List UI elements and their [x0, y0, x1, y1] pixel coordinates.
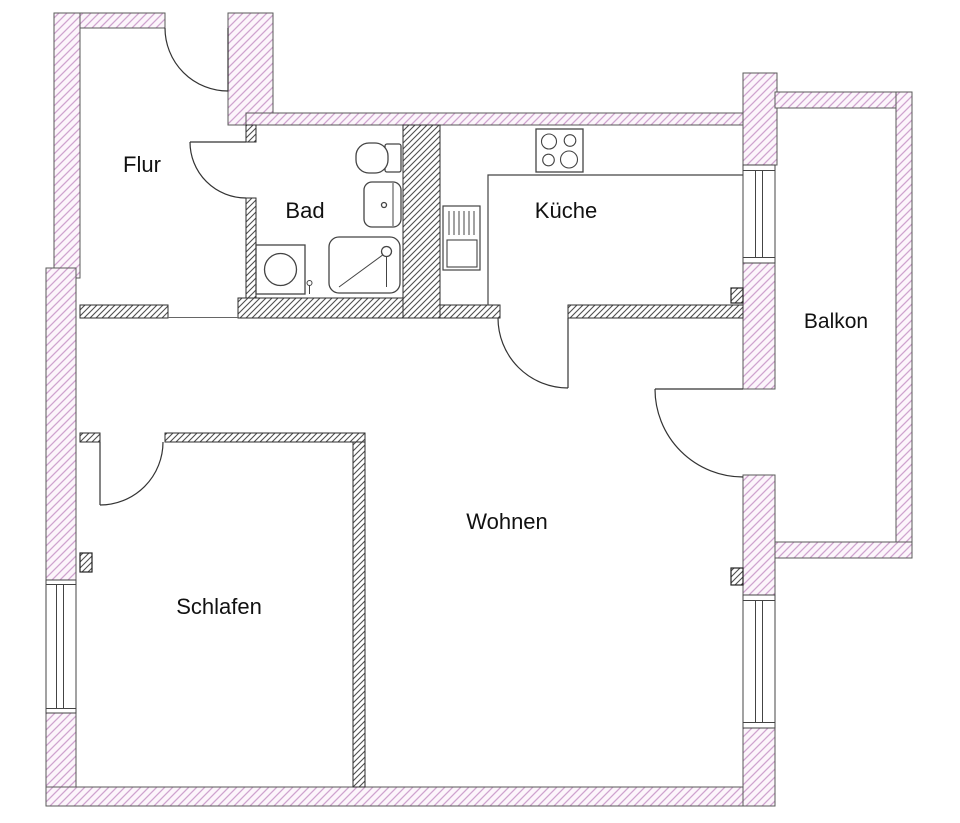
wall-shaft-bad-kueche: [403, 125, 440, 318]
door-entrance-arc: [165, 28, 228, 91]
riser-block-left: [80, 553, 92, 572]
window-schlafen: [46, 580, 76, 713]
interior-walls: [80, 125, 743, 787]
door-bad: [190, 142, 246, 198]
toilet-bowl: [356, 143, 388, 173]
kitchen-counter-edge: [488, 175, 743, 305]
door-bad-arc: [190, 142, 246, 198]
door-balkon: [655, 389, 743, 477]
wall-bottom: [46, 787, 775, 806]
riser-block-kitchen: [731, 288, 743, 303]
stove-burner-3: [543, 154, 555, 166]
wall-right-lower: [743, 728, 775, 806]
stove: [536, 129, 583, 172]
sink-faucet: [382, 203, 387, 208]
door-entrance: [165, 28, 228, 91]
riser-block-wohnen: [731, 568, 743, 585]
shower-tray: [329, 237, 400, 293]
door-schlafen-arc: [100, 442, 163, 505]
kitchen-sink: [443, 206, 480, 270]
wall-schlafen-wohnen: [353, 442, 365, 787]
exterior-walls: [46, 13, 912, 806]
balcony-wall-top: [775, 92, 912, 108]
washing-machine: [256, 245, 312, 294]
wall-left-upper: [54, 13, 80, 278]
shower: [329, 237, 400, 293]
balcony-wall-right: [896, 92, 912, 558]
window-wohnen: [743, 595, 775, 728]
stove-burner-4: [561, 151, 578, 168]
window-wohnen-frame: [743, 595, 775, 728]
wall-right-upper: [743, 263, 775, 389]
wall-kueche-wohnen-left: [440, 305, 500, 318]
balcony-wall-bottom: [775, 542, 912, 558]
wall-left-middle: [46, 268, 76, 580]
kitchen-sink-basin: [447, 240, 477, 267]
wall-flur-wohnen: [80, 305, 168, 318]
door-balkon-arc: [655, 389, 743, 477]
washer-tap: [307, 281, 312, 286]
washing-machine-drum: [265, 254, 297, 286]
wall-flur-bad: [246, 198, 256, 306]
wall-entrance-pillar: [228, 13, 273, 125]
stove-burner-2: [564, 135, 576, 147]
wall-schlafen-top-stub: [80, 433, 100, 442]
bathroom-fixtures: [256, 143, 401, 294]
wall-top-kitchen: [246, 113, 743, 125]
door-kueche: [498, 318, 568, 388]
toilet: [356, 143, 401, 173]
door-schlafen: [100, 442, 163, 505]
window-kueche: [743, 165, 775, 263]
floor-plan-drawing: [0, 0, 960, 823]
kitchen-fixtures: [443, 129, 743, 305]
wall-flur-bad-stub: [246, 125, 256, 142]
door-kueche-arc: [498, 318, 568, 388]
bathroom-sink: [364, 182, 401, 227]
shower-head: [382, 247, 392, 257]
stove-burner-1: [542, 134, 557, 149]
wall-bad-bottom: [238, 298, 403, 318]
floor-plan: Flur Bad Küche Balkon Wohnen Schlafen: [0, 0, 960, 823]
wall-schlafen-top: [165, 433, 365, 442]
wall-right-middle: [743, 475, 775, 595]
wall-right-pillar: [743, 73, 777, 165]
window-kueche-frame: [743, 165, 775, 263]
wall-kueche-wohnen-right: [568, 305, 743, 318]
stove-body: [536, 129, 583, 172]
window-schlafen-frame: [46, 580, 76, 713]
